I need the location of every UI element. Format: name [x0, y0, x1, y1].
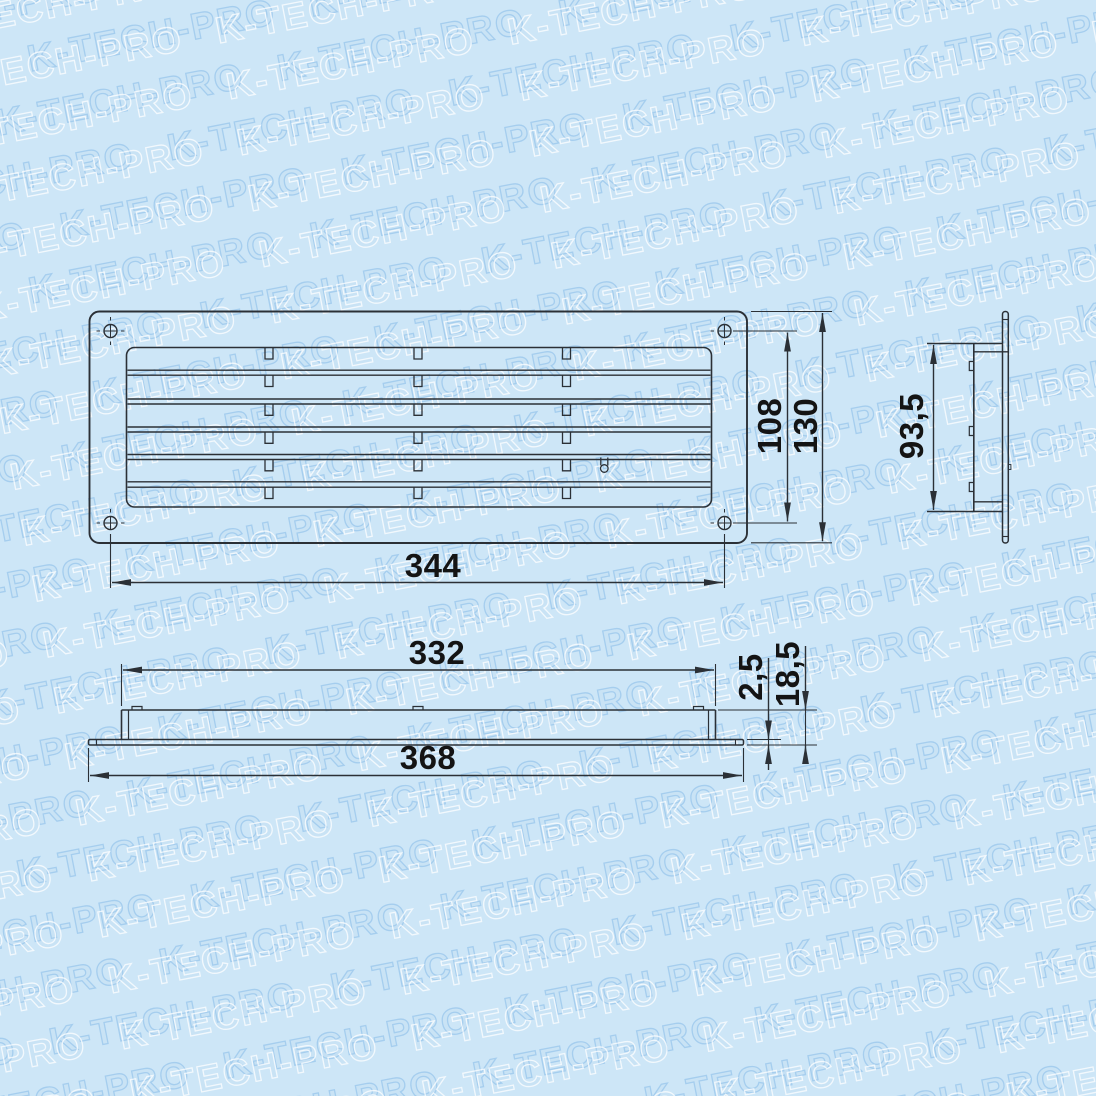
dim-label-side-body-height: 93,5: [894, 356, 930, 496]
side-flange-plate: [1003, 312, 1009, 544]
dim-label-total-depth: 18,5: [770, 604, 806, 744]
drawing-lines: [0, 0, 1096, 1096]
side-body: [927, 344, 1003, 512]
bottom-body: [122, 710, 716, 740]
screw-hole-icon: [97, 317, 125, 345]
dim-label-inner-body-width: 332: [367, 635, 507, 671]
dim-label-hole-spacing-vertical: 108: [752, 356, 788, 496]
technical-drawing-page: K-TECH-PRO K-TECH-PRO K-TECH-PRO K-TECH-…: [0, 0, 1096, 1096]
louver-slats: [128, 370, 711, 487]
screw-hole-icon: [97, 509, 125, 530]
side-view: [927, 312, 1011, 544]
screw-hole-icon: [711, 509, 739, 530]
dim-label-frame-height: 130: [788, 356, 824, 496]
dim-label-hole-spacing-horizontal: 344: [363, 548, 503, 584]
dim-label-flange-width: 368: [358, 740, 498, 776]
dim-label-flange-thickness: 2,5: [733, 607, 769, 747]
